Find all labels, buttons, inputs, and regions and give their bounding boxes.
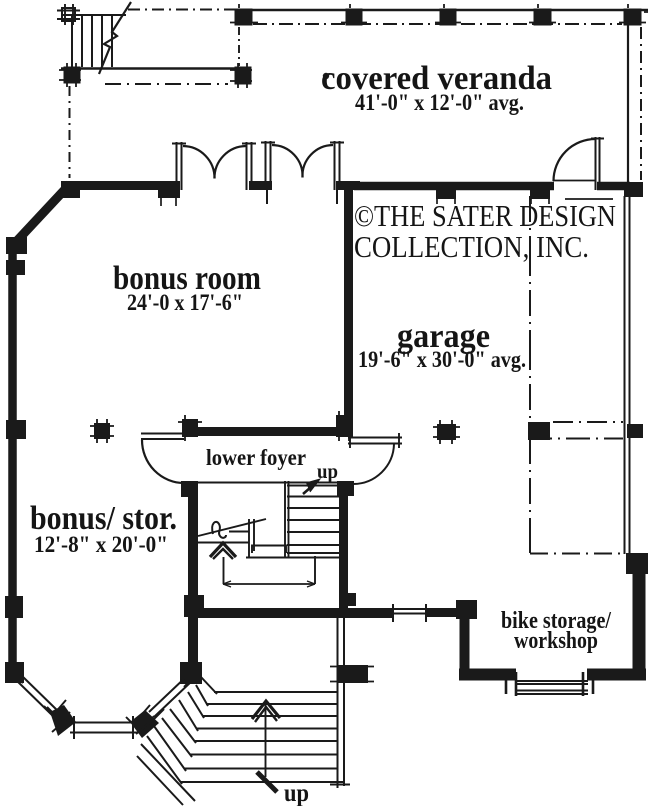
svg-text:41'-0" x 12'-0" avg.: 41'-0" x 12'-0" avg. (355, 90, 524, 115)
svg-text:12'-8" x 20'-0": 12'-8" x 20'-0" (34, 532, 168, 557)
svg-text:workshop: workshop (514, 628, 598, 654)
svg-text:COLLECTION, INC.: COLLECTION, INC. (354, 229, 589, 264)
svg-text:24'-0 x 17'-6": 24'-0 x 17'-6" (127, 290, 243, 315)
svg-text:lower foyer: lower foyer (206, 445, 306, 470)
svg-text:19'-6" x 30'-0" avg.: 19'-6" x 30'-0" avg. (358, 347, 526, 372)
svg-text:©THE SATER DESIGN: ©THE SATER DESIGN (354, 198, 616, 233)
svg-text:up: up (284, 780, 309, 806)
